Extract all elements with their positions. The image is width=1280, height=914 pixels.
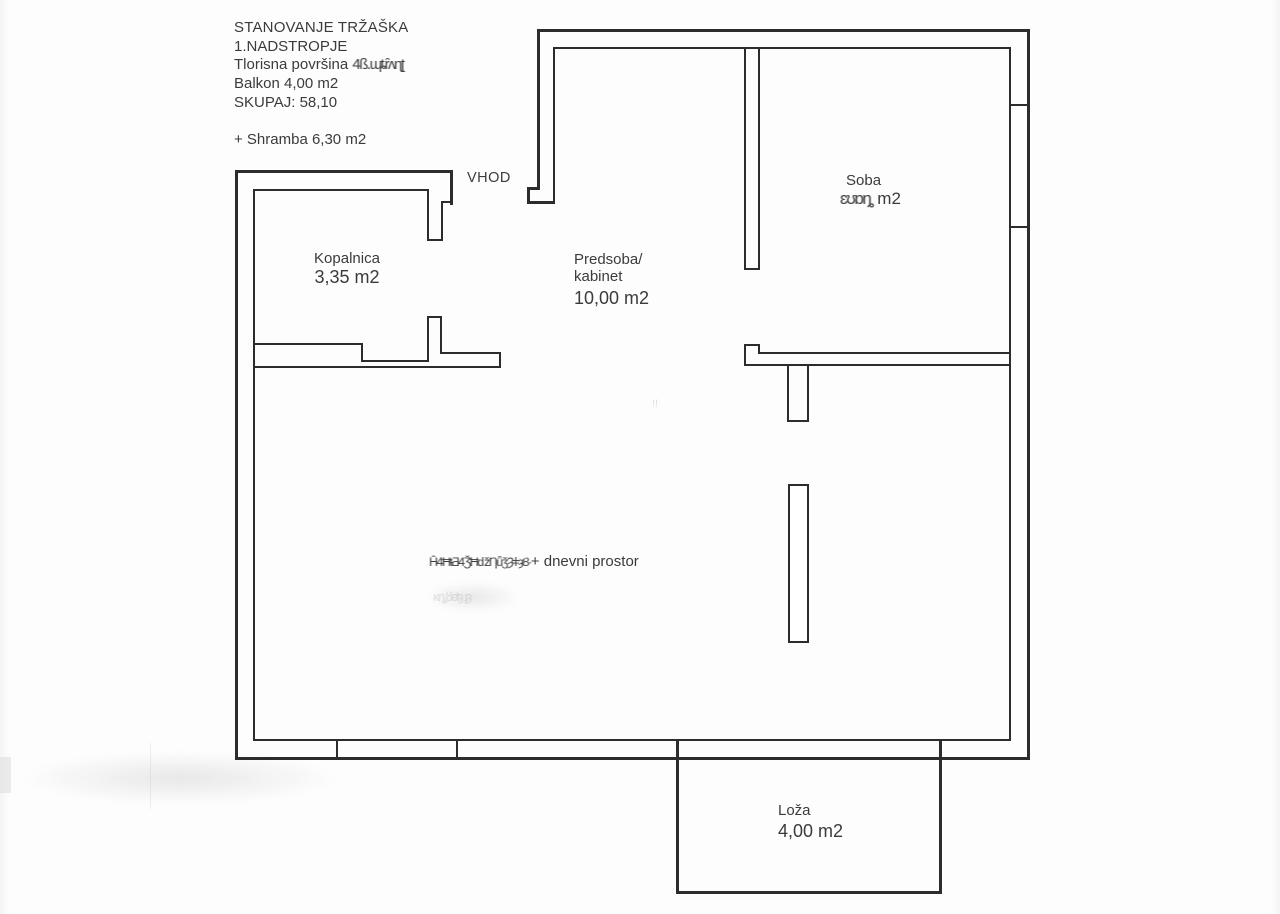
soba-name: Soba xyxy=(846,172,901,189)
loza-name: Loža xyxy=(778,802,843,819)
balcony-line: Balkon 4,00 m2 xyxy=(234,75,408,94)
predsoba-name-line2: kabinet xyxy=(574,268,649,285)
kopalnica-door-notch-v1 xyxy=(427,189,429,241)
entry-inner-vertical xyxy=(553,47,555,203)
entrance-label: VHOD xyxy=(467,170,511,186)
kopalnica-door-notch-h2 xyxy=(441,201,453,203)
wall-stub-cap xyxy=(787,420,809,422)
soba-area: ɛʊɒȵ m2 xyxy=(840,189,901,209)
kopalnica-door-notch-v2 xyxy=(441,201,443,241)
soba-southwall-hook-left xyxy=(744,344,746,366)
outer-wall-bottom xyxy=(235,757,1030,760)
loza-area: 4,00 m2 xyxy=(778,821,843,842)
soba-southwall-top xyxy=(758,352,1011,354)
kopalnica-step-h xyxy=(361,360,429,362)
partition-predsoba-soba-cap xyxy=(744,268,760,270)
faint-mark: ǃǃ xyxy=(652,398,658,410)
partition-predsoba-soba-right xyxy=(758,47,760,270)
kopalnica-name: Kopalnica xyxy=(286,250,408,267)
predsoba-area: 10,00 m2 xyxy=(574,288,649,309)
kopalnica-area: 3,35 m2 xyxy=(286,267,408,288)
inner-wall-left xyxy=(253,189,255,741)
soba-area-obscured: ɛʊɒȵ xyxy=(840,189,873,208)
floor-plan-page: STANOVANJE TRŽAŠKA 1.NADSTROPJE Tlorisna… xyxy=(0,0,1280,914)
window-tick-bottom-left xyxy=(336,739,338,759)
hall-jamb-v2 xyxy=(440,316,442,354)
hall-jamb-h xyxy=(440,352,501,354)
outer-wall-right xyxy=(1027,29,1030,760)
hall-jamb-v1 xyxy=(427,316,429,362)
outer-wall-top xyxy=(537,29,1029,32)
soba-southwall-bottom xyxy=(744,364,1011,366)
room-soba-label: Soba ɛʊɒȵ m2 xyxy=(846,172,901,209)
dnevni-name: + dnevni prostor xyxy=(531,553,639,570)
loza-wall-right xyxy=(939,739,942,894)
loza-wall-left xyxy=(676,739,679,894)
project-title: STANOVANJE TRŽAŠKA xyxy=(234,19,408,38)
storage-line: + Shramba 6,30 m2 xyxy=(234,131,408,150)
inner-wall-right xyxy=(1009,47,1011,740)
room-predsoba-label: Predsoba/ kabinet 10,00 m2 xyxy=(574,251,649,309)
wall-stub-right xyxy=(807,366,809,422)
dnevni-faint-remnant: ĸȵȣɛŧȝ ɟȝ xyxy=(433,589,470,603)
page-edge-shade-right xyxy=(1271,0,1280,914)
window-tick-bottom-right xyxy=(456,739,458,759)
kopalnica-inner-bottom xyxy=(253,343,363,345)
inner-wall-top xyxy=(553,47,1011,49)
loza-wall-bottom xyxy=(676,891,942,894)
predsoba-name-line1: Predsoba/ xyxy=(574,251,649,268)
wall-stub-left xyxy=(787,366,789,422)
soba-area-unit: m2 xyxy=(873,189,901,208)
livingroom-top-wall xyxy=(253,366,501,368)
outer-wall-topleft-right xyxy=(450,170,453,205)
scan-artifact-block xyxy=(0,757,11,793)
partition-predsoba-soba-left xyxy=(744,47,746,270)
window-tick-right-upper xyxy=(1011,104,1028,106)
title-block: STANOVANJE TRŽAŠKA 1.NADSTROPJE Tlorisna… xyxy=(234,19,408,149)
total-line: SKUPAJ: 58,10 xyxy=(234,94,408,113)
entry-outer-vertical xyxy=(537,29,540,190)
floor-line: 1.NADSTROPJE xyxy=(234,38,408,57)
wall-freestanding-partition xyxy=(788,484,809,643)
room-dnevni-label: Ĥ4ĦŧƋ4ǮĦǆȠǖǯȜǂȝȢ·+ dnevni prostor xyxy=(429,553,639,571)
scan-artifact-line xyxy=(150,743,151,809)
outer-wall-left xyxy=(235,170,238,760)
floor-area-obscured-value: 4ß.ɰȶȓʌɳʈ xyxy=(352,57,403,75)
outer-wall-topleft-top xyxy=(235,170,453,173)
floor-area-line: Tlorisna površina 4ß.ɰȶȓʌɳʈ xyxy=(234,56,408,75)
floor-area-label: Tlorisna površina xyxy=(234,56,352,73)
room-kopalnica-label: Kopalnica 3,35 m2 xyxy=(286,250,408,288)
window-tick-right-lower xyxy=(1011,226,1028,228)
dnevni-obscured-prefix: Ĥ4ĦŧƋ4ǮĦǆȠǖǯȜǂȝȢ· xyxy=(429,555,531,568)
kopalnica-inner-top xyxy=(253,189,429,191)
room-loza-label: Loža 4,00 m2 xyxy=(778,802,843,842)
entry-door-jamb-bottom xyxy=(527,201,555,204)
inner-wall-bottom xyxy=(253,739,1011,741)
